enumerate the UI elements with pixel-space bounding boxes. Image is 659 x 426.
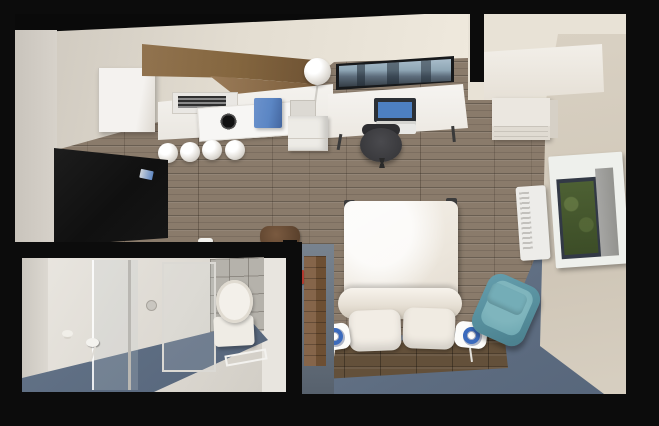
- tall-white-cabinet: [98, 68, 155, 132]
- glass-shower-screen: [92, 260, 138, 390]
- outer-wall-top: [0, 0, 659, 14]
- glass-screen-post: [128, 260, 131, 390]
- bathroom-right-wall: [262, 258, 286, 392]
- floor-drain: [146, 300, 157, 311]
- drawer-unit: [288, 116, 328, 151]
- pendant-light-4: [225, 140, 245, 160]
- shower-door-frame: [162, 262, 216, 372]
- left-wall-face: [15, 30, 57, 254]
- window-glass-green: [560, 181, 599, 255]
- shower-stool: [62, 330, 73, 337]
- partition-wood-accent: [304, 256, 326, 366]
- pillow-left: [348, 309, 401, 352]
- shower-head: [86, 338, 99, 347]
- drawer-seam: [288, 138, 328, 139]
- dresser-side: [550, 100, 558, 138]
- outer-wall-bottom: [0, 394, 659, 426]
- wardrobe: [484, 44, 604, 100]
- cooktop-burner-left: [220, 113, 237, 130]
- office-chair-seat: [360, 128, 402, 162]
- outer-wall-left: [0, 0, 15, 426]
- outer-wall-right: [626, 0, 659, 426]
- pendant-light-3: [202, 140, 222, 160]
- printer: [290, 100, 316, 117]
- office-chair-legs: [368, 158, 396, 168]
- dresser-drawer-lines: [494, 126, 548, 138]
- floor-lamp-sphere: [304, 58, 331, 85]
- wall-tv-panel: [54, 146, 168, 246]
- toilet-lid: [216, 280, 253, 323]
- laptop-screen: [374, 98, 416, 122]
- pillow-right: [402, 307, 455, 350]
- pendant-light-2: [180, 142, 200, 162]
- counter-bin-blue: [254, 98, 282, 128]
- bathroom-left-wall: [22, 258, 48, 392]
- apartment-render: [0, 0, 659, 426]
